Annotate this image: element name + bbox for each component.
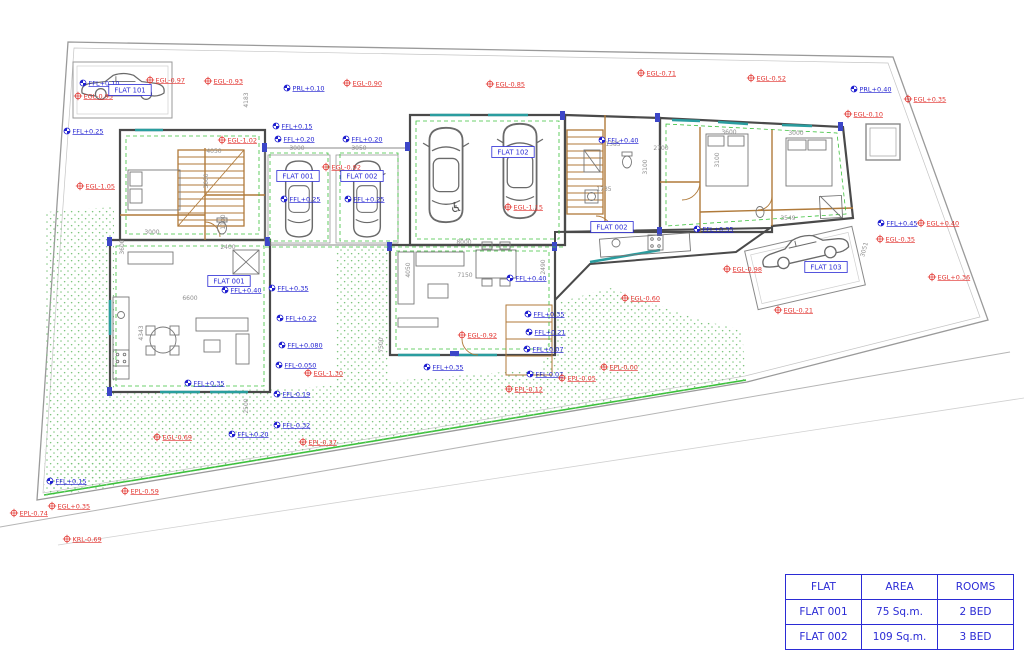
flat-tag: FLAT 001	[208, 276, 250, 287]
level-marker: EGL-1.05	[76, 182, 115, 191]
level-marker: EGL-0.92	[322, 163, 361, 172]
dimension-label: 2500	[243, 398, 250, 413]
flat-tag: FLAT 101	[109, 85, 151, 96]
dimension-label: 3549	[780, 215, 795, 222]
bed-right-2	[786, 138, 832, 186]
dimension-label: 6600	[182, 295, 197, 302]
level-marker-label: EGL-0.71	[647, 69, 676, 77]
flat-tag: FLAT 001	[277, 171, 319, 182]
dimension-label: 1735	[596, 186, 611, 193]
level-marker-label: EGL-0.60	[631, 294, 660, 302]
stair-left	[178, 150, 244, 226]
level-marker-label: FFL+0.20	[284, 135, 315, 143]
level-marker-label: FFL+0.40	[516, 274, 547, 282]
level-marker-label: EGL+0.36	[938, 273, 971, 281]
level-marker-label: EGL-0.21	[784, 306, 813, 314]
level-marker-label: FFL+0.15	[56, 477, 87, 485]
level-marker: FFL+0.40	[222, 286, 262, 294]
level-marker: EGL+0.36	[928, 273, 970, 282]
level-marker-label: KRL-0.69	[73, 535, 102, 543]
legend-cell: 109 Sq.m.	[862, 625, 938, 650]
level-marker-label: EGL-0.98	[733, 265, 762, 273]
level-marker: FFL+0.22	[277, 314, 317, 322]
level-marker-label: FFL+0.35	[278, 284, 309, 292]
legend-header-cell: AREA	[862, 575, 938, 600]
dimension-label: 3000	[144, 229, 159, 236]
level-marker: EGL-0.92	[458, 331, 497, 340]
level-marker: FFL+0.20	[275, 135, 315, 143]
building-layer	[73, 62, 900, 396]
legend-cell: 75 Sq.m.	[862, 600, 938, 625]
flat-tag-label: FLAT 001	[213, 278, 244, 286]
level-marker-label: FFL+0.080	[288, 341, 323, 349]
legend-row: FLAT 002109 Sq.m.3 BED	[786, 625, 1014, 650]
level-marker-label: EGL-0.85	[496, 80, 525, 88]
level-marker-label: FFL+0.25	[354, 195, 385, 203]
dimension-label: 7150	[457, 272, 472, 279]
level-marker-label: FFL+0.35	[703, 225, 734, 233]
legend-cell: 3 BED	[938, 625, 1014, 650]
level-marker: FFL+0.35	[185, 379, 225, 387]
level-marker-label: FFL+0.35	[194, 379, 225, 387]
level-marker-label: EGL-0.90	[353, 79, 382, 87]
level-marker: EGL-0.98	[723, 265, 762, 274]
level-marker-label: FFL+0.22	[286, 314, 317, 322]
level-marker: EGL-0.52	[747, 74, 786, 83]
legend-header-cell: ROOMS	[938, 575, 1014, 600]
level-marker-label: FFL+0.25	[73, 127, 104, 135]
level-marker-label: FFL+0.35	[433, 363, 464, 371]
level-marker: FFL+0.07	[524, 345, 564, 353]
level-marker: FFL+0.25	[64, 127, 104, 135]
level-marker: EGL-1.02	[218, 136, 257, 145]
level-marker-label: PRL+0.10	[293, 84, 325, 92]
level-marker-label: PRL+0.40	[860, 85, 892, 93]
level-marker: FFL+0.45	[878, 219, 918, 227]
bed-right-1	[706, 134, 748, 186]
level-marker: EGL-0.35	[876, 235, 915, 244]
dimension-label: 7500	[378, 337, 385, 352]
flat-legend-table: FLATAREAROOMSFLAT 00175 Sq.m.2 BEDFLAT 0…	[785, 574, 1014, 650]
level-marker-label: EGL-1.02	[228, 136, 257, 144]
wheelchair-icon: ♿	[450, 200, 463, 216]
flat-tag: FLAT 002	[341, 171, 383, 182]
level-marker: EGL-0.90	[343, 79, 382, 88]
dimension-label: 3600	[721, 129, 736, 136]
level-marker-label: FFL-0.32	[283, 421, 311, 429]
legend-cell: FLAT 001	[786, 600, 862, 625]
plan-canvas: ♿ 41834050360030003050300036004343660024…	[0, 0, 1024, 665]
dimension-label: 3050	[351, 145, 366, 152]
level-marker-label: FFL-0.19	[283, 390, 311, 398]
flat-tag-label: FLAT 102	[497, 149, 528, 157]
level-marker-label: FFL+0.40	[608, 136, 639, 144]
level-marker-label: EGL-0.69	[163, 433, 192, 441]
level-marker: FFL+0.20	[343, 135, 383, 143]
dimension-label: 3600	[203, 173, 210, 188]
dimension-label: 8000	[456, 239, 471, 246]
level-marker-label: FFL+0.20	[238, 430, 269, 438]
utility-box	[866, 124, 900, 160]
dimension-label: 3000	[788, 130, 803, 137]
level-marker-label: EGL-1.30	[314, 369, 343, 377]
level-marker-label: EGL-0.97	[156, 76, 185, 84]
legend-table: FLATAREAROOMSFLAT 00175 Sq.m.2 BEDFLAT 0…	[785, 574, 1014, 650]
level-marker: FFL+0.35	[424, 363, 464, 371]
level-marker-label: EGL+0.40	[927, 219, 960, 227]
level-marker: EGL+0.40	[917, 219, 959, 228]
flat-tag-label: FLAT 103	[810, 264, 841, 272]
level-marker: FFL+0.35	[269, 284, 309, 292]
legend-cell: 2 BED	[938, 600, 1014, 625]
level-marker-label: FFL+0.40	[231, 286, 262, 294]
level-marker: PRL+0.40	[851, 85, 891, 93]
level-marker-label: EGL-0.92	[468, 331, 497, 339]
level-marker-label: FFL+0.25	[290, 195, 321, 203]
level-marker: EGL-0.95	[74, 92, 113, 101]
level-marker: KRL-0.69	[63, 535, 102, 544]
level-marker: PRL+0.10	[284, 84, 324, 92]
bed-left-unit	[128, 170, 180, 210]
dimension-label: 2490	[540, 259, 547, 274]
level-marker: EGL-0.93	[204, 77, 243, 86]
level-marker: EGL-0.71	[637, 69, 676, 78]
level-marker: EGL-0.85	[486, 80, 525, 89]
level-marker-label: EPL-0.05	[568, 374, 596, 382]
level-marker-label: FFL+0.20	[352, 135, 383, 143]
level-marker-label: EGL-0.35	[886, 235, 915, 243]
kitchen-left	[113, 297, 129, 379]
level-marker-label: FFL+0.45	[887, 219, 918, 227]
level-marker: FFL+0.15	[273, 122, 313, 130]
level-marker: FFL+0.21	[526, 328, 566, 336]
dimension-label: 3051	[859, 241, 870, 258]
level-marker-label: FFL+0.35	[534, 310, 565, 318]
level-marker: FFL+0.080	[279, 341, 323, 349]
level-marker-label: EPL-0.37	[309, 438, 337, 446]
level-marker: EGL+0.35	[48, 502, 90, 511]
planted-wedge-bottom	[44, 370, 746, 496]
level-marker: EGL-0.21	[774, 306, 813, 315]
dimension-label: 3600	[119, 239, 126, 254]
dimension-label: 4050	[206, 148, 221, 155]
dimension-label: 4050	[405, 262, 412, 277]
sofa-left	[196, 318, 249, 364]
level-marker-label: EPL-0.74	[20, 509, 48, 517]
level-marker-label: FFL+0.07	[533, 345, 564, 353]
wardrobe-left	[128, 252, 173, 264]
legend-header-cell: FLAT	[786, 575, 862, 600]
level-marker-label: EPL-0.00	[610, 363, 638, 371]
unit-right-kitchen	[555, 228, 770, 300]
level-marker: FFL-0.050	[276, 361, 316, 369]
level-marker: EGL+0.35	[904, 95, 946, 104]
level-marker: EGL-0.10	[844, 110, 883, 119]
legend-cell: FLAT 002	[786, 625, 862, 650]
level-marker: FFL+0.40	[507, 274, 547, 282]
level-marker: EGL-1.30	[304, 369, 343, 378]
level-marker-label: FFL-0.050	[285, 361, 317, 369]
flat-tag-label: FLAT 001	[282, 173, 313, 181]
level-marker-label: FFL+0.15	[282, 122, 313, 130]
dimension-label: 4343	[138, 325, 145, 340]
level-marker-label: EGL+0.35	[914, 95, 947, 103]
legend-row: FLAT 00175 Sq.m.2 BED	[786, 600, 1014, 625]
level-marker-label: EGL-0.52	[757, 74, 786, 82]
level-marker-label: FFL+0.21	[535, 328, 566, 336]
dining-table-left	[150, 327, 176, 353]
level-marker-label: EGL-0.93	[214, 77, 243, 85]
level-marker: FFL+0.35	[525, 310, 565, 318]
floor-plan-drawing: ♿ 41834050360030003050300036004343660024…	[0, 0, 1024, 665]
flat-tag-label: FLAT 101	[114, 87, 145, 95]
level-marker-label: EPL-0.59	[131, 487, 159, 495]
dimension-label: 1100	[220, 214, 227, 229]
dimension-label: 2700	[653, 145, 668, 152]
level-marker-label: EGL+0.35	[58, 502, 91, 510]
flat-tag-label: FLAT 002	[596, 224, 627, 232]
dimension-label: 2400	[220, 244, 235, 251]
level-marker-label: EPL-0.12	[515, 385, 543, 393]
dimension-label: 4183	[243, 92, 250, 107]
unit-left-living	[110, 240, 270, 392]
dimension-label: 3100	[714, 152, 721, 167]
flat-tag: FLAT 102	[492, 147, 534, 158]
dimension-label: 3100	[642, 159, 649, 174]
landscape-layer	[44, 207, 746, 496]
level-marker-label: EGL-0.10	[854, 110, 883, 118]
dimension-label: 3000	[289, 145, 304, 152]
level-marker: EPL-0.74	[10, 509, 48, 518]
level-marker-label: EGL-1.05	[86, 182, 115, 190]
level-marker: FFL+0.25	[345, 195, 385, 203]
flat-tag: FLAT 103	[805, 262, 847, 273]
flat-tag-label: FLAT 002	[346, 173, 377, 181]
level-marker-label: EGL-1.15	[514, 203, 543, 211]
planted-courtyard	[336, 247, 388, 392]
utility-box-inner	[870, 128, 896, 156]
level-marker: EPL-0.59	[121, 487, 159, 496]
flat-tag: FLAT 002	[591, 222, 633, 233]
